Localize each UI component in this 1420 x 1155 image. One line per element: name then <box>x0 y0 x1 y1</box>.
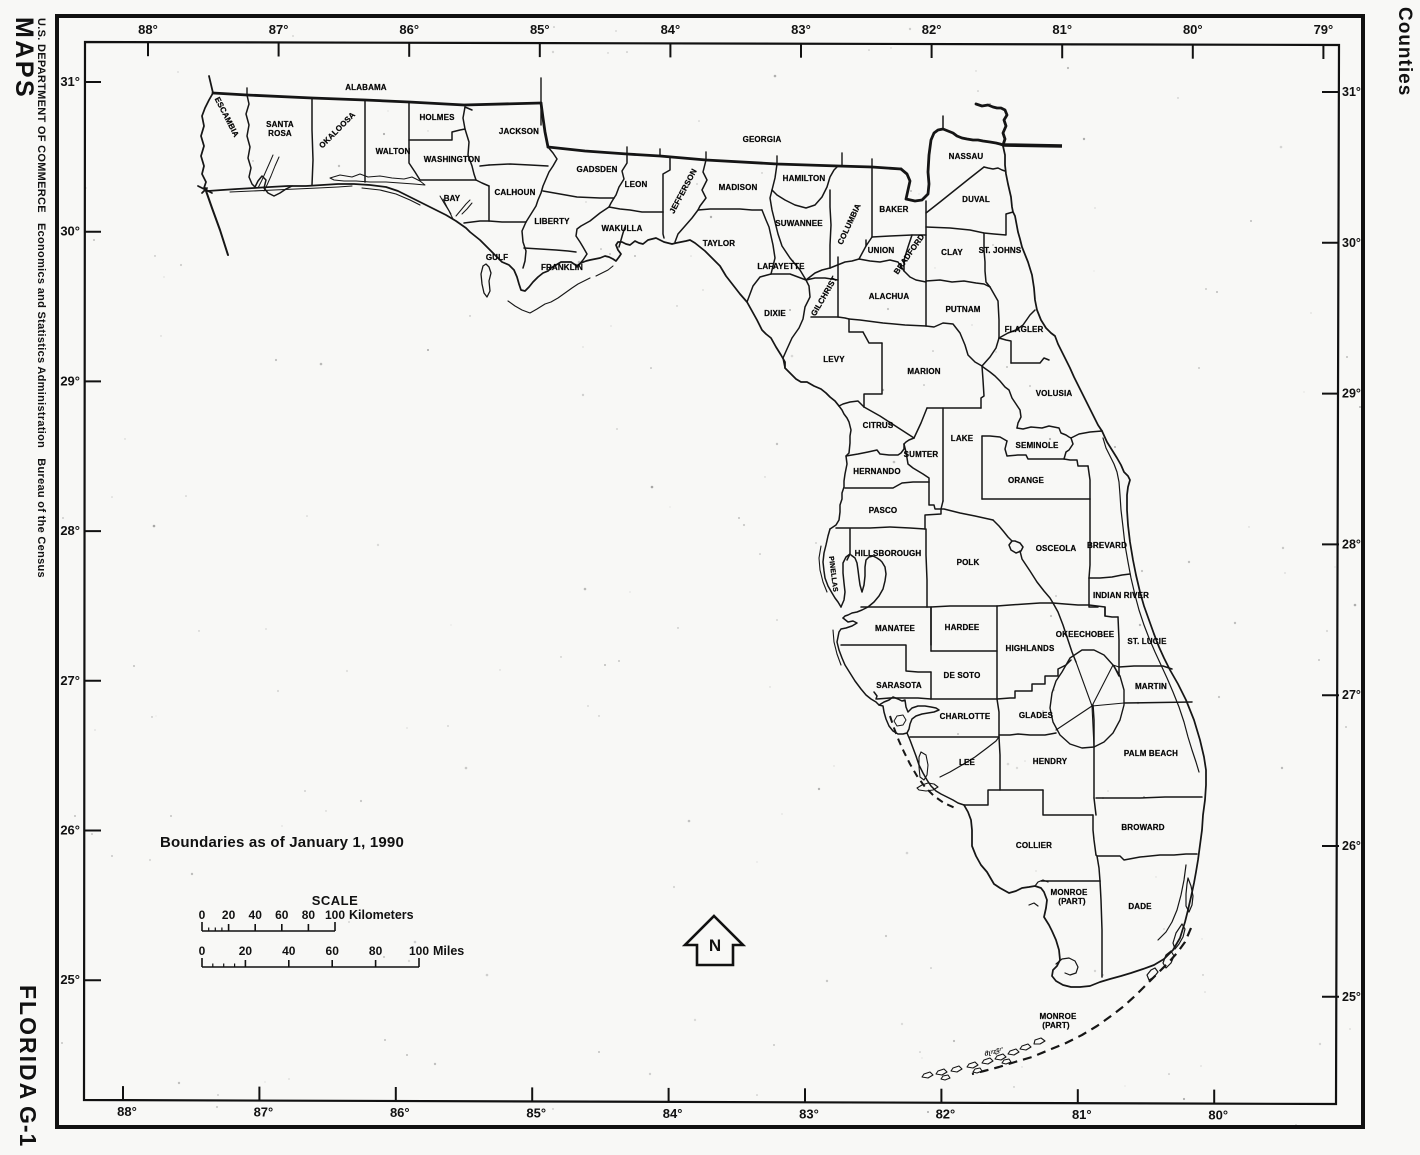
svg-text:87°: 87° <box>269 22 289 37</box>
svg-text:MARTIN: MARTIN <box>1135 682 1167 691</box>
svg-text:HERNANDO: HERNANDO <box>853 467 900 476</box>
svg-text:SEMINOLE: SEMINOLE <box>1016 441 1059 450</box>
svg-text:79°: 79° <box>1314 22 1334 37</box>
svg-text:SANTA: SANTA <box>266 120 294 129</box>
svg-text:DUVAL: DUVAL <box>962 195 990 204</box>
svg-text:25°: 25° <box>1342 990 1361 1004</box>
svg-text:LEVY: LEVY <box>823 355 845 364</box>
svg-text:HARDEE: HARDEE <box>945 623 980 632</box>
svg-text:LIBERTY: LIBERTY <box>534 217 570 226</box>
svg-text:WAKULLA: WAKULLA <box>601 224 642 233</box>
svg-text:40: 40 <box>282 944 296 958</box>
svg-text:GEORGIA: GEORGIA <box>743 135 782 144</box>
svg-text:85°: 85° <box>530 22 550 37</box>
svg-text:UNION: UNION <box>868 246 895 255</box>
svg-text:HAMILTON: HAMILTON <box>783 174 826 183</box>
svg-text:G-1: G-1 <box>15 1106 41 1147</box>
svg-text:BAKER: BAKER <box>879 205 908 214</box>
svg-text:GULF: GULF <box>486 253 508 262</box>
svg-text:ROSA: ROSA <box>268 129 292 138</box>
svg-text:30°: 30° <box>1342 236 1361 250</box>
svg-text:0: 0 <box>199 944 206 958</box>
svg-text:SUWANNEE: SUWANNEE <box>775 219 823 228</box>
svg-text:82°: 82° <box>922 22 942 37</box>
svg-text:DADE: DADE <box>1128 902 1152 911</box>
svg-text:WALTON: WALTON <box>376 147 411 156</box>
svg-text:100: 100 <box>325 908 345 922</box>
svg-text:85°: 85° <box>526 1105 546 1120</box>
svg-text:20: 20 <box>222 908 236 922</box>
svg-text:DIXIE: DIXIE <box>764 309 786 318</box>
svg-text:ST. JOHNS: ST. JOHNS <box>979 246 1022 255</box>
svg-text:HIGHLANDS: HIGHLANDS <box>1006 644 1055 653</box>
svg-text:27°: 27° <box>1342 688 1361 702</box>
svg-text:CITRUS: CITRUS <box>863 421 894 430</box>
svg-text:Counties: Counties <box>1394 7 1415 96</box>
svg-text:VOLUSIA: VOLUSIA <box>1036 389 1073 398</box>
svg-text:Kilometers: Kilometers <box>349 908 414 922</box>
svg-text:JACKSON: JACKSON <box>499 127 539 136</box>
svg-text:26°: 26° <box>60 823 80 838</box>
svg-text:Miles: Miles <box>433 944 464 958</box>
svg-text:GADSDEN: GADSDEN <box>576 165 617 174</box>
svg-text:86°: 86° <box>390 1105 410 1120</box>
svg-text:26°: 26° <box>1342 839 1361 853</box>
svg-text:PUTNAM: PUTNAM <box>945 305 980 314</box>
svg-text:88°: 88° <box>138 22 158 37</box>
svg-text:LEON: LEON <box>625 180 648 189</box>
svg-text:83°: 83° <box>799 1106 819 1121</box>
svg-text:MONROE: MONROE <box>1040 1012 1077 1021</box>
svg-text:INDIAN RIVER: INDIAN RIVER <box>1093 591 1149 600</box>
svg-text:25°: 25° <box>60 972 80 987</box>
svg-text:81°: 81° <box>1052 22 1072 37</box>
svg-text:0: 0 <box>199 908 206 922</box>
svg-text:ORANGE: ORANGE <box>1008 476 1045 485</box>
svg-text:88°: 88° <box>117 1104 137 1119</box>
svg-text:LAFAYETTE: LAFAYETTE <box>757 262 805 271</box>
svg-text:MONROE: MONROE <box>1051 888 1088 897</box>
svg-text:WASHINGTON: WASHINGTON <box>424 155 481 164</box>
svg-text:82°: 82° <box>936 1107 956 1122</box>
svg-text:81°: 81° <box>1072 1107 1092 1122</box>
svg-text:FLAGLER: FLAGLER <box>1005 325 1044 334</box>
svg-text:60: 60 <box>275 908 289 922</box>
svg-text:86°: 86° <box>399 22 419 37</box>
svg-text:100: 100 <box>409 944 429 958</box>
svg-text:31°: 31° <box>1342 85 1361 99</box>
svg-text:SARASOTA: SARASOTA <box>876 681 922 690</box>
svg-text:83°: 83° <box>791 22 811 37</box>
svg-text:SCALE: SCALE <box>312 893 359 908</box>
svg-text:HENDRY: HENDRY <box>1033 757 1068 766</box>
svg-text:40: 40 <box>249 908 263 922</box>
svg-text:20: 20 <box>239 944 253 958</box>
svg-text:84°: 84° <box>663 1106 683 1121</box>
svg-text:POLK: POLK <box>957 558 980 567</box>
svg-text:N: N <box>709 936 721 955</box>
svg-text:(PART): (PART) <box>1058 897 1086 906</box>
svg-text:LEE: LEE <box>959 758 976 767</box>
svg-text:OSCEOLA: OSCEOLA <box>1036 544 1077 553</box>
svg-text:31°: 31° <box>60 74 80 89</box>
svg-text:BROWARD: BROWARD <box>1121 823 1164 832</box>
svg-text:U.S. DEPARTMENT OF COMMERCE: U.S. DEPARTMENT OF COMMERCE Economics an… <box>35 18 47 578</box>
svg-text:BAY: BAY <box>444 194 461 203</box>
svg-text:HOLMES: HOLMES <box>419 113 455 122</box>
svg-text:PASCO: PASCO <box>869 506 898 515</box>
svg-text:ALACHUA: ALACHUA <box>869 292 910 301</box>
svg-text:DE SOTO: DE SOTO <box>944 671 981 680</box>
svg-text:29°: 29° <box>60 373 80 388</box>
svg-text:OKEECHOBEE: OKEECHOBEE <box>1056 630 1115 639</box>
svg-text:MANATEE: MANATEE <box>875 624 916 633</box>
svg-text:ST. LUCIE: ST. LUCIE <box>1127 637 1167 646</box>
svg-text:COLLIER: COLLIER <box>1016 841 1052 850</box>
svg-text:84°: 84° <box>661 22 681 37</box>
svg-text:ALABAMA: ALABAMA <box>345 83 387 92</box>
svg-text:NASSAU: NASSAU <box>949 152 984 161</box>
svg-text:TAYLOR: TAYLOR <box>703 239 736 248</box>
svg-text:SUMTER: SUMTER <box>904 450 939 459</box>
svg-text:28°: 28° <box>1342 537 1361 551</box>
svg-text:HILLSBOROUGH: HILLSBOROUGH <box>855 549 922 558</box>
svg-text:30°: 30° <box>60 224 80 239</box>
svg-text:BREVARD: BREVARD <box>1087 541 1127 550</box>
svg-text:MADISON: MADISON <box>719 183 758 192</box>
svg-text:MAPS: MAPS <box>10 17 38 99</box>
svg-text:80: 80 <box>369 944 383 958</box>
svg-text:80: 80 <box>302 908 316 922</box>
svg-text:MARION: MARION <box>907 367 940 376</box>
svg-text:PALM BEACH: PALM BEACH <box>1124 749 1178 758</box>
svg-text:80°: 80° <box>1208 1108 1228 1123</box>
svg-text:80°: 80° <box>1183 22 1203 37</box>
svg-text:27°: 27° <box>60 673 80 688</box>
svg-text:Boundaries as of January 1, 19: Boundaries as of January 1, 1990 <box>160 834 404 851</box>
svg-text:87°: 87° <box>254 1105 274 1120</box>
svg-text:LAKE: LAKE <box>951 434 974 443</box>
svg-text:FRANKLIN: FRANKLIN <box>541 263 583 272</box>
svg-text:(PART): (PART) <box>1042 1021 1070 1030</box>
svg-text:CHARLOTTE: CHARLOTTE <box>940 712 991 721</box>
svg-text:60: 60 <box>326 944 340 958</box>
svg-text:GLADES: GLADES <box>1019 711 1054 720</box>
svg-text:29°: 29° <box>1342 387 1361 401</box>
svg-text:CALHOUN: CALHOUN <box>494 188 535 197</box>
svg-text:28°: 28° <box>60 523 80 538</box>
svg-text:CLAY: CLAY <box>941 248 963 257</box>
svg-text:FLORIDA: FLORIDA <box>15 985 41 1101</box>
